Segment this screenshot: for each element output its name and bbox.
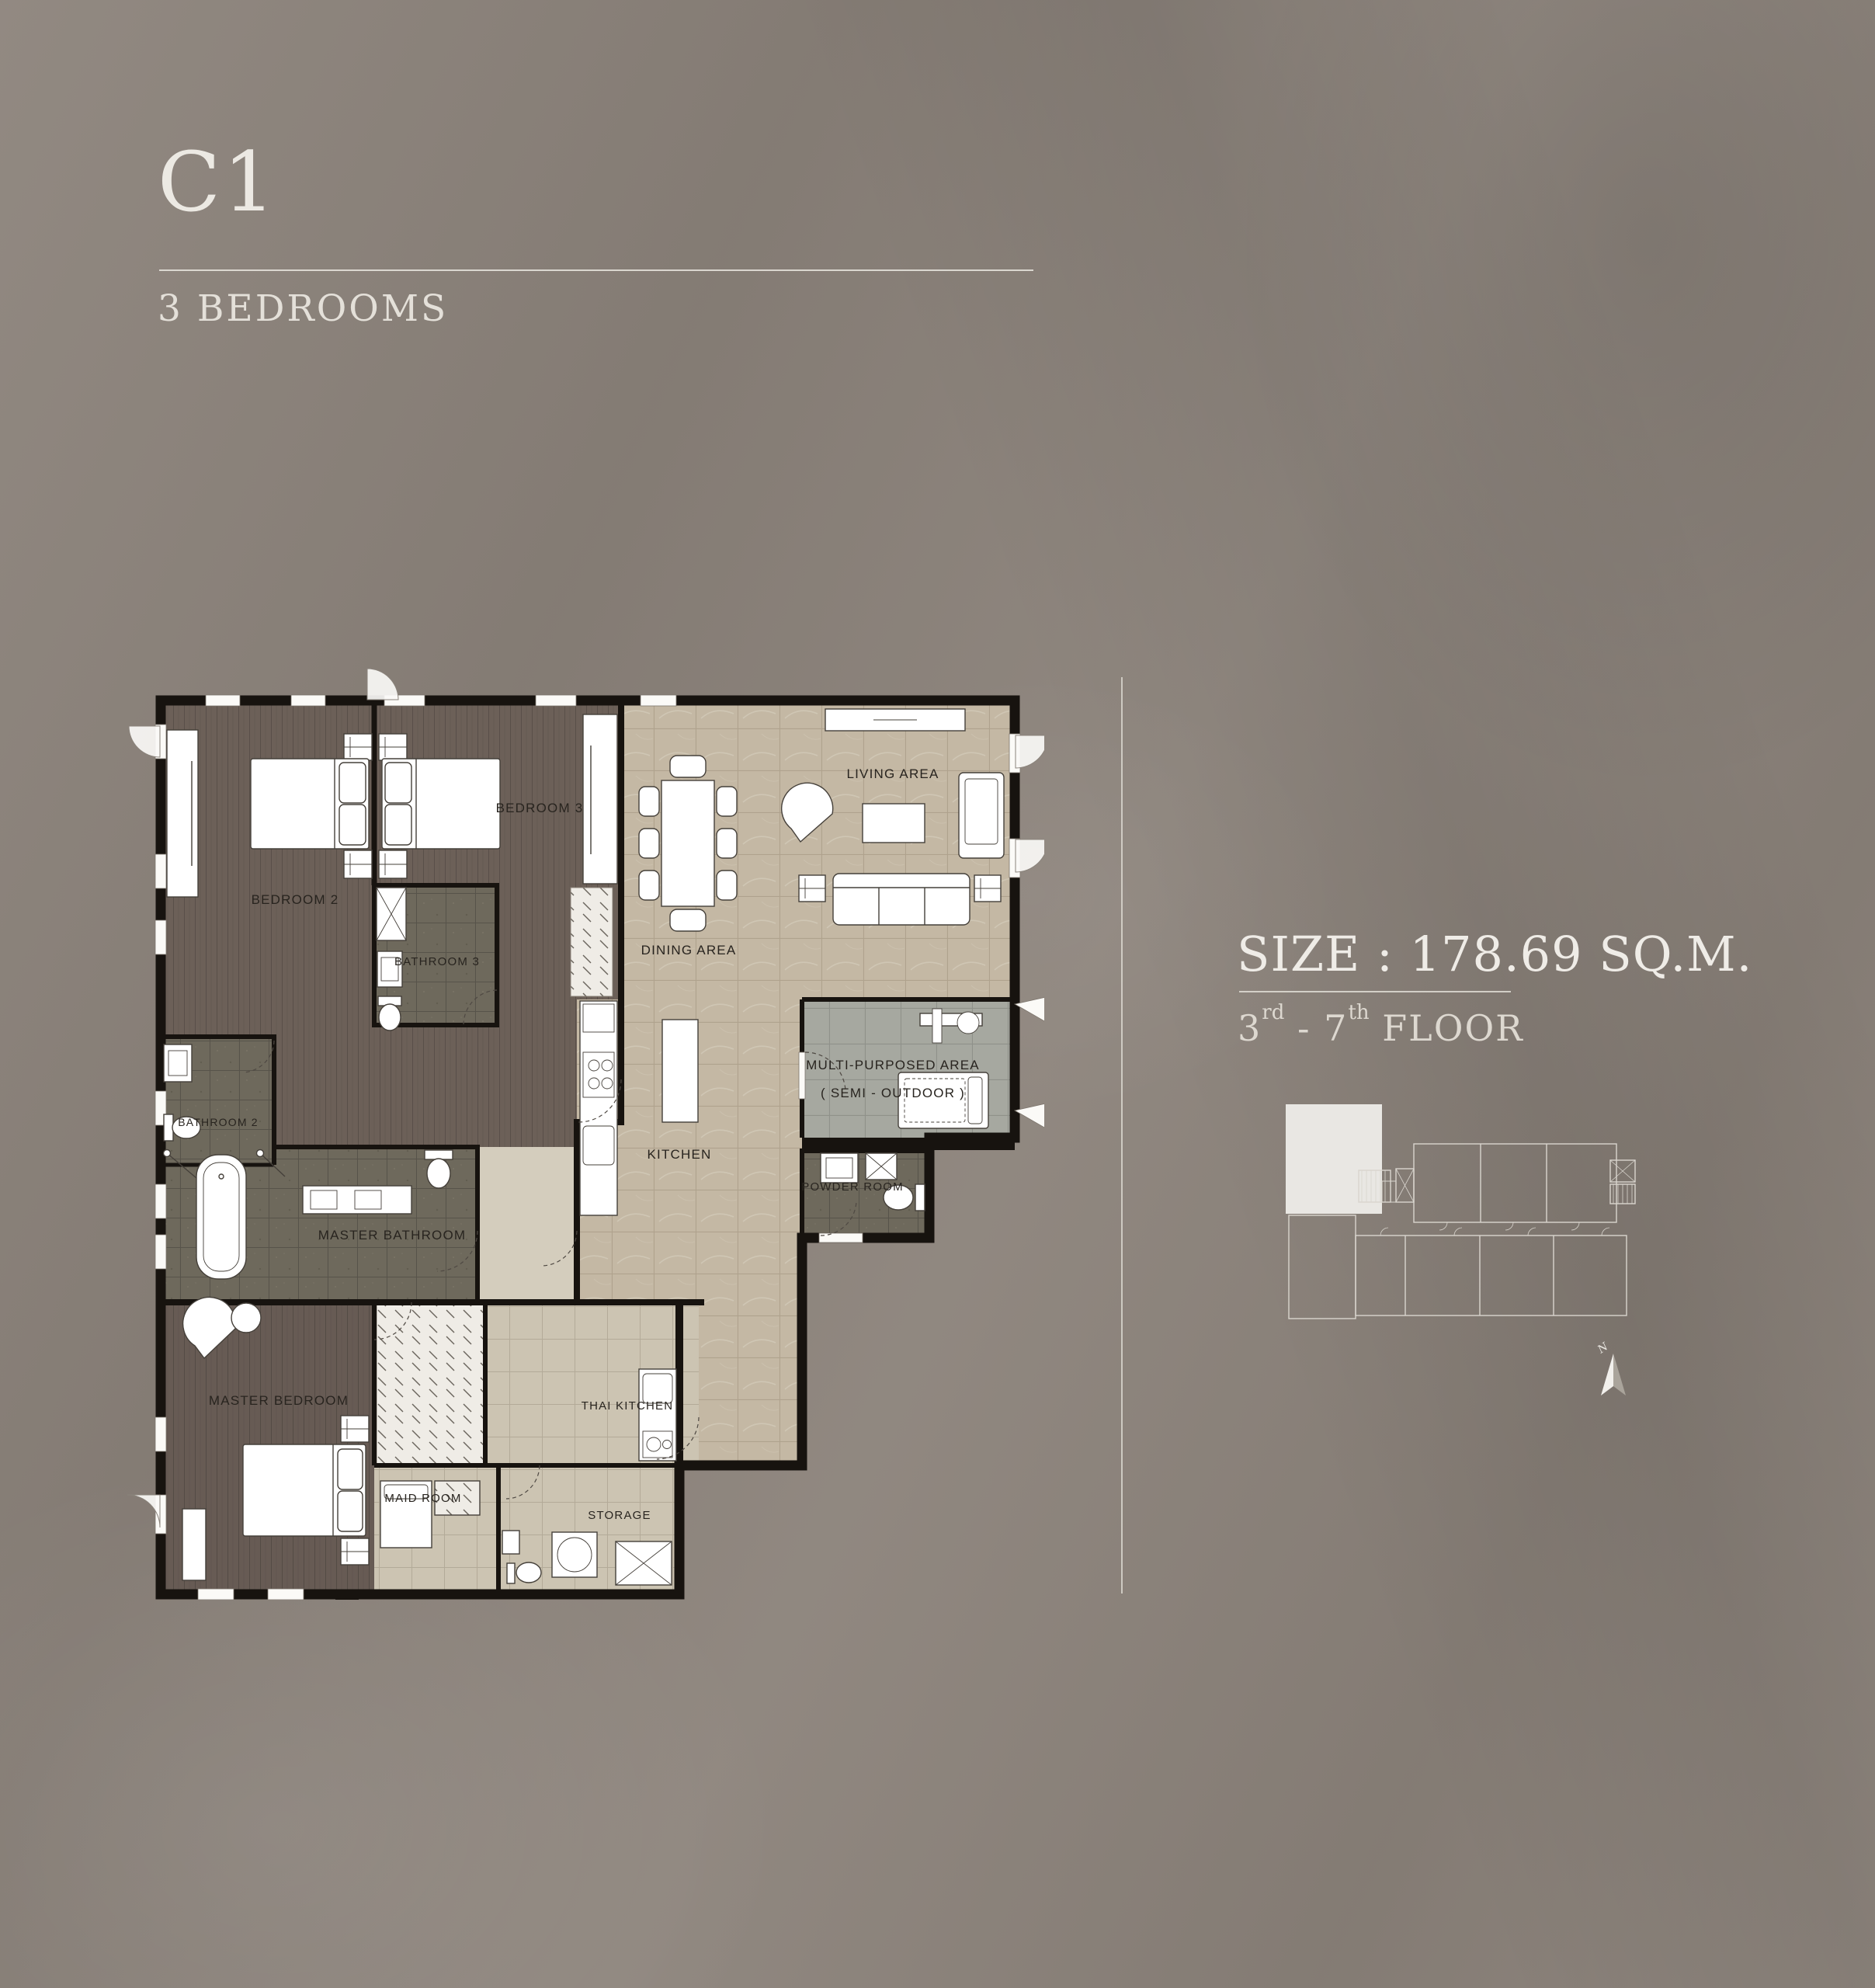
bottom-pier bbox=[335, 1594, 359, 1600]
dining-chair bbox=[639, 829, 659, 858]
unit-title: C1 bbox=[158, 141, 278, 224]
toilet-tank bbox=[507, 1563, 515, 1583]
core-lobby bbox=[1382, 1181, 1396, 1202]
multi-bottom-wall bbox=[802, 1138, 1015, 1150]
toilet bbox=[427, 1159, 450, 1188]
north-label: N bbox=[1595, 1340, 1611, 1357]
size-label: SIZE : 178.69 SQ.M. bbox=[1237, 926, 1752, 982]
room-label-bathroom-2: BATHROOM 2 bbox=[178, 1116, 259, 1128]
building-key-plan: N bbox=[1280, 1097, 1644, 1416]
corridor-marble-floor bbox=[699, 999, 802, 1465]
room-label-thai-kitchen: THAI KITCHEN bbox=[582, 1399, 674, 1413]
room-label-dining-area: DINING AREA bbox=[641, 943, 737, 958]
room-label-bedroom-2: BEDROOM 2 bbox=[252, 892, 339, 907]
dining-chair bbox=[717, 871, 737, 900]
bedroom-3-closet bbox=[571, 888, 613, 996]
walk-in-closet bbox=[377, 1304, 484, 1464]
room-label-master-bathroom: MASTER BATHROOM bbox=[318, 1228, 467, 1242]
room-label-semi-outdoor: ( SEMI - OUTDOOR ) bbox=[821, 1086, 965, 1100]
fridge bbox=[583, 1004, 614, 1032]
dining-chair bbox=[670, 756, 706, 777]
room-label-bathroom-3: BATHROOM 3 bbox=[394, 955, 480, 968]
vertical-divider bbox=[1121, 677, 1123, 1594]
room-label-bedroom-3: BEDROOM 3 bbox=[496, 801, 584, 815]
kitchen-sink bbox=[583, 1126, 614, 1165]
dining-chair bbox=[717, 787, 737, 816]
coffee-table bbox=[863, 804, 925, 843]
floor-range-label: 3rd - 7th FLOOR bbox=[1238, 1007, 1524, 1049]
floor-plan: BEDROOM 2 BEDROOM 3 BATHROOM 3 BATHROOM … bbox=[124, 668, 1044, 1600]
toilet bbox=[379, 1004, 401, 1030]
room-label-multi-purposed-area: MULTI-PURPOSED AREA bbox=[806, 1058, 980, 1072]
floor-to: 7 bbox=[1324, 1007, 1348, 1049]
keyplan-unit bbox=[1289, 1215, 1356, 1319]
bathroom-sink bbox=[502, 1531, 519, 1554]
dining-chair bbox=[639, 871, 659, 900]
side-table bbox=[231, 1303, 261, 1333]
keyplan-bottom-row bbox=[1356, 1236, 1627, 1315]
room-label-storage: STORAGE bbox=[588, 1509, 651, 1522]
room-label-maid-room: MAID ROOM bbox=[384, 1492, 461, 1505]
room-label-kitchen: KITCHEN bbox=[647, 1147, 711, 1162]
hall-floor bbox=[477, 1147, 577, 1302]
north-arrow-icon: N bbox=[1595, 1340, 1626, 1395]
floor-word: FLOOR bbox=[1370, 1007, 1524, 1049]
kitchen-island bbox=[662, 1020, 698, 1122]
toilet-tank bbox=[425, 1150, 453, 1159]
size-rule bbox=[1239, 991, 1511, 992]
room-label-living-area: LIVING AREA bbox=[846, 766, 939, 781]
wardrobe bbox=[583, 714, 617, 884]
toilet-tank bbox=[915, 1184, 925, 1211]
title-rule bbox=[159, 269, 1033, 271]
wardrobe bbox=[167, 730, 198, 897]
floor-dash: - bbox=[1297, 1007, 1324, 1049]
floor-to-ordinal: th bbox=[1348, 1001, 1369, 1024]
floor-from: 3 bbox=[1238, 1007, 1262, 1049]
toilet bbox=[516, 1562, 541, 1583]
dining-chair bbox=[639, 787, 659, 816]
highlighted-unit-c1 bbox=[1286, 1104, 1382, 1214]
sofa bbox=[833, 874, 970, 925]
dining-table bbox=[661, 780, 714, 906]
room-label-powder-room: POWDER ROOM bbox=[801, 1180, 904, 1194]
floor-from-ordinal: rd bbox=[1262, 1001, 1284, 1024]
corridor-wood-floor bbox=[274, 1042, 621, 1147]
room-label-master-bedroom: MASTER BEDROOM bbox=[209, 1393, 349, 1408]
cooktop bbox=[583, 1052, 614, 1097]
dining-chair bbox=[717, 829, 737, 858]
dining-chair bbox=[670, 909, 706, 931]
unit-subtitle: 3 BEDROOMS bbox=[158, 287, 448, 330]
dresser bbox=[182, 1509, 206, 1580]
keyplan-top-row bbox=[1414, 1144, 1616, 1222]
kitchen-counter bbox=[580, 1001, 617, 1215]
toilet-tank bbox=[164, 1114, 173, 1141]
